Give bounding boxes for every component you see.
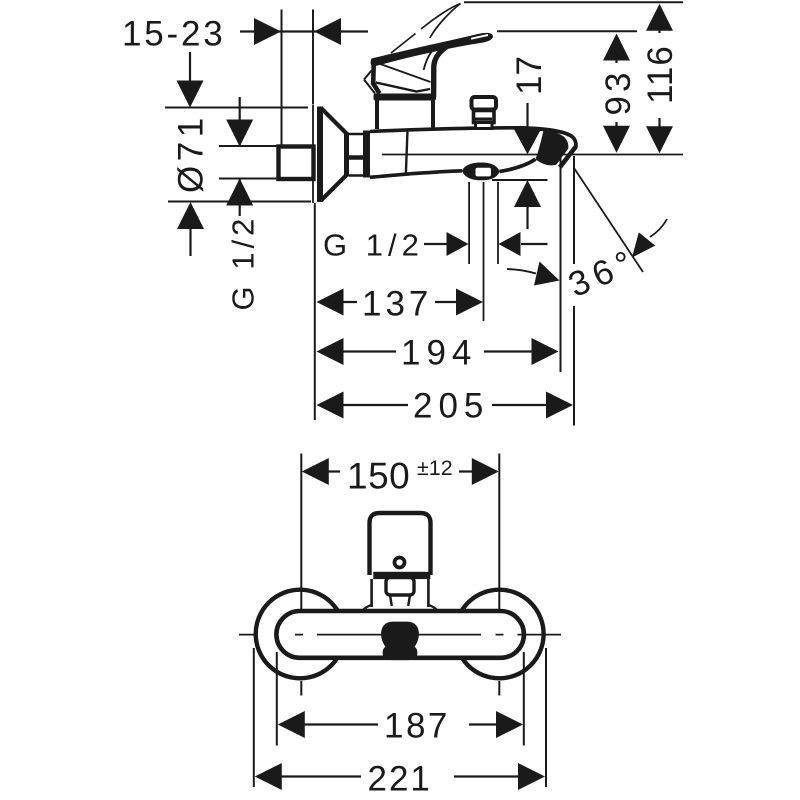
svg-text:93: 93	[599, 69, 638, 116]
svg-text:Ø71: Ø71	[172, 113, 211, 193]
svg-text:17: 17	[510, 56, 549, 95]
svg-text:G 1/2: G 1/2	[323, 228, 424, 263]
svg-text:187: 187	[384, 707, 450, 746]
svg-text:221: 221	[368, 760, 432, 799]
svg-text:116: 116	[641, 45, 680, 104]
svg-text:15-23: 15-23	[122, 15, 226, 54]
svg-text:±12: ±12	[417, 456, 453, 480]
svg-text:194: 194	[401, 334, 477, 373]
svg-text:150: 150	[347, 456, 410, 497]
svg-text:205: 205	[413, 387, 489, 426]
svg-text:G 1/2: G 1/2	[226, 215, 261, 311]
svg-text:137: 137	[362, 285, 432, 324]
